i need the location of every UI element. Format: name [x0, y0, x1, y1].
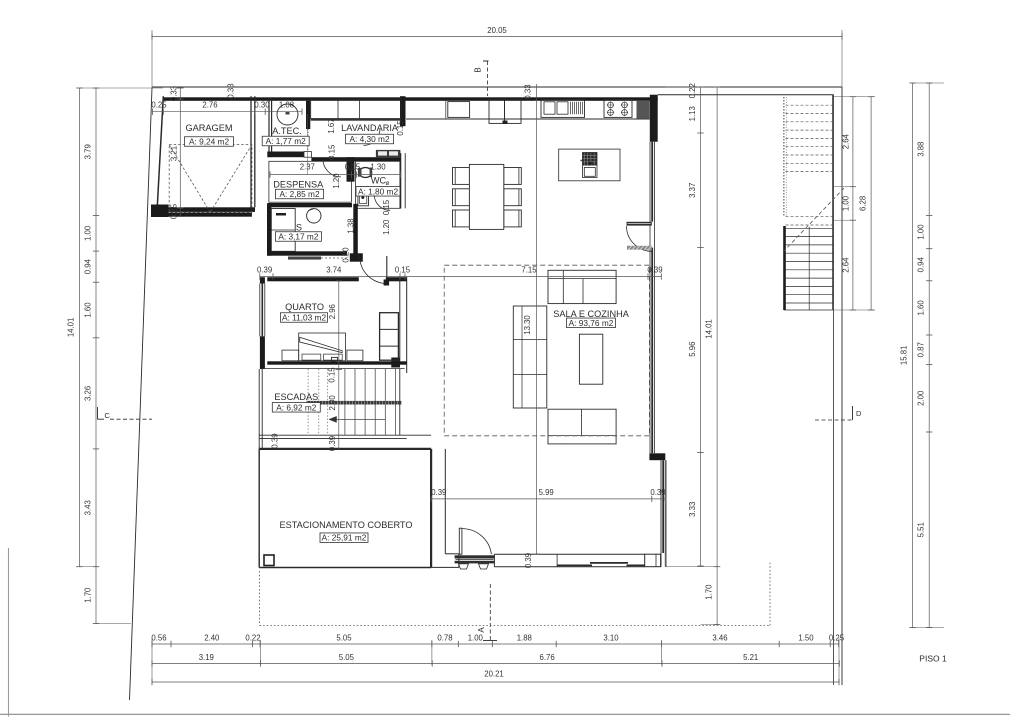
svg-text:0.15: 0.15 — [395, 265, 411, 274]
svg-text:A: 25,91 m2: A: 25,91 m2 — [322, 533, 367, 543]
svg-text:1.00: 1.00 — [84, 225, 93, 241]
svg-text:0.15: 0.15 — [328, 367, 337, 383]
svg-text:3.37: 3.37 — [688, 183, 697, 198]
svg-text:1.60: 1.60 — [917, 300, 926, 316]
svg-text:3.21: 3.21 — [169, 146, 178, 161]
svg-text:6.28: 6.28 — [859, 196, 868, 211]
svg-text:A: 6,92 m2: A: 6,92 m2 — [276, 402, 317, 412]
svg-text:0.33: 0.33 — [169, 86, 178, 101]
svg-text:A: 93,76 m2: A: 93,76 m2 — [569, 318, 614, 328]
svg-text:1.08: 1.08 — [279, 101, 294, 110]
svg-text:2.37: 2.37 — [300, 163, 315, 172]
svg-text:14.01: 14.01 — [705, 319, 714, 339]
svg-text:5.51: 5.51 — [917, 522, 926, 537]
svg-text:1.60: 1.60 — [84, 302, 93, 318]
svg-text:ESTACIONAMENTO COBERTO: ESTACIONAMENTO COBERTO — [279, 520, 412, 530]
svg-text:1.67: 1.67 — [327, 118, 336, 133]
svg-text:14.01: 14.01 — [66, 318, 75, 338]
svg-text:1.00: 1.00 — [468, 634, 484, 643]
svg-text:0.25: 0.25 — [151, 101, 167, 110]
svg-text:3.26: 3.26 — [84, 386, 93, 401]
svg-text:PISO 1: PISO 1 — [919, 654, 947, 664]
svg-text:0.33: 0.33 — [524, 84, 533, 99]
svg-text:5.96: 5.96 — [688, 342, 697, 357]
svg-text:1.38: 1.38 — [347, 218, 356, 233]
svg-text:6.76: 6.76 — [540, 653, 555, 662]
svg-text:0.22: 0.22 — [245, 634, 260, 643]
svg-text:3.74: 3.74 — [326, 265, 342, 274]
svg-text:0.39: 0.39 — [271, 433, 280, 448]
svg-text:WC: WC — [371, 176, 387, 186]
svg-text:A: 2,85 m2: A: 2,85 m2 — [279, 189, 320, 199]
svg-text:5.99: 5.99 — [539, 488, 554, 497]
svg-text:1.13: 1.13 — [688, 106, 697, 121]
svg-text:0.25: 0.25 — [829, 634, 845, 643]
svg-text:2.64: 2.64 — [841, 257, 850, 273]
svg-text:5.21: 5.21 — [743, 653, 758, 662]
svg-text:QUARTO: QUARTO — [285, 302, 324, 312]
svg-text:1.30: 1.30 — [370, 163, 386, 172]
svg-text:GARAGEM: GARAGEM — [186, 123, 233, 133]
svg-text:A: A — [477, 627, 486, 633]
svg-text:3.79: 3.79 — [84, 144, 93, 159]
svg-text:0.94: 0.94 — [917, 257, 926, 273]
svg-text:0.33: 0.33 — [227, 83, 236, 98]
svg-text:0.15: 0.15 — [328, 144, 337, 160]
svg-text:1.70: 1.70 — [705, 584, 714, 600]
svg-text:5.05: 5.05 — [336, 634, 352, 643]
svg-text:A: 1,77 m2: A: 1,77 m2 — [266, 136, 307, 146]
svg-text:C: C — [105, 411, 111, 420]
svg-text:B: B — [474, 67, 483, 72]
svg-text:20.21: 20.21 — [484, 669, 504, 678]
svg-text:15.81: 15.81 — [900, 346, 909, 366]
svg-text:0.94: 0.94 — [84, 258, 93, 274]
svg-text:0.87: 0.87 — [917, 342, 926, 357]
svg-text:0.78: 0.78 — [437, 634, 452, 643]
svg-text:3.88: 3.88 — [917, 142, 926, 157]
svg-text:13.30: 13.30 — [523, 315, 532, 335]
svg-text:ESCADAS: ESCADAS — [274, 392, 318, 402]
svg-text:1.88: 1.88 — [517, 634, 532, 643]
svg-text:A.TEC.: A.TEC. — [272, 126, 302, 136]
svg-text:0.39: 0.39 — [431, 488, 446, 497]
svg-text:0.39: 0.39 — [257, 265, 272, 274]
svg-text:2.40: 2.40 — [204, 634, 220, 643]
svg-text:0.20: 0.20 — [342, 247, 351, 263]
svg-text:D: D — [856, 409, 862, 418]
svg-text:0.56: 0.56 — [151, 634, 166, 643]
svg-text:A: 11,03 m2: A: 11,03 m2 — [282, 313, 327, 323]
svg-text:1.20: 1.20 — [332, 173, 341, 189]
svg-text:3.10: 3.10 — [603, 634, 619, 643]
svg-text:0.22: 0.22 — [688, 83, 697, 98]
svg-text:2.64: 2.64 — [841, 133, 850, 149]
svg-text:0.25: 0.25 — [169, 203, 178, 219]
svg-text:A: 1,80 m2: A: 1,80 m2 — [358, 186, 399, 196]
svg-text:A: 3,17 m2: A: 3,17 m2 — [278, 232, 319, 242]
svg-text:0.39: 0.39 — [328, 436, 337, 451]
svg-text:A: 4,30 m2: A: 4,30 m2 — [349, 134, 390, 144]
svg-text:LAVANDARIA: LAVANDARIA — [341, 123, 399, 133]
svg-text:0.15: 0.15 — [345, 163, 361, 172]
svg-text:1.00: 1.00 — [917, 224, 926, 240]
svg-text:2.00: 2.00 — [328, 395, 337, 411]
svg-text:2.96: 2.96 — [328, 304, 337, 319]
svg-text:3.46: 3.46 — [712, 634, 727, 643]
svg-text:2.76: 2.76 — [202, 101, 217, 110]
svg-text:1.20: 1.20 — [382, 219, 391, 235]
svg-text:A: 9,24 m2: A: 9,24 m2 — [189, 137, 230, 147]
svg-text:0.30: 0.30 — [254, 101, 270, 110]
svg-text:7.15: 7.15 — [521, 265, 537, 274]
svg-text:3.19: 3.19 — [199, 653, 214, 662]
svg-text:20.05: 20.05 — [487, 26, 507, 35]
svg-text:3.43: 3.43 — [84, 500, 93, 515]
svg-text:5.05: 5.05 — [339, 653, 355, 662]
svg-text:1.00: 1.00 — [841, 195, 850, 211]
svg-text:0.39: 0.39 — [524, 553, 533, 568]
svg-text:0.15: 0.15 — [382, 199, 391, 215]
svg-text:3.33: 3.33 — [688, 502, 697, 517]
svg-text:0.39: 0.39 — [650, 488, 665, 497]
svg-text:1.70: 1.70 — [84, 587, 93, 603]
svg-text:2.00: 2.00 — [917, 390, 926, 406]
svg-text:1.50: 1.50 — [798, 634, 814, 643]
svg-text:0.39: 0.39 — [647, 265, 662, 274]
